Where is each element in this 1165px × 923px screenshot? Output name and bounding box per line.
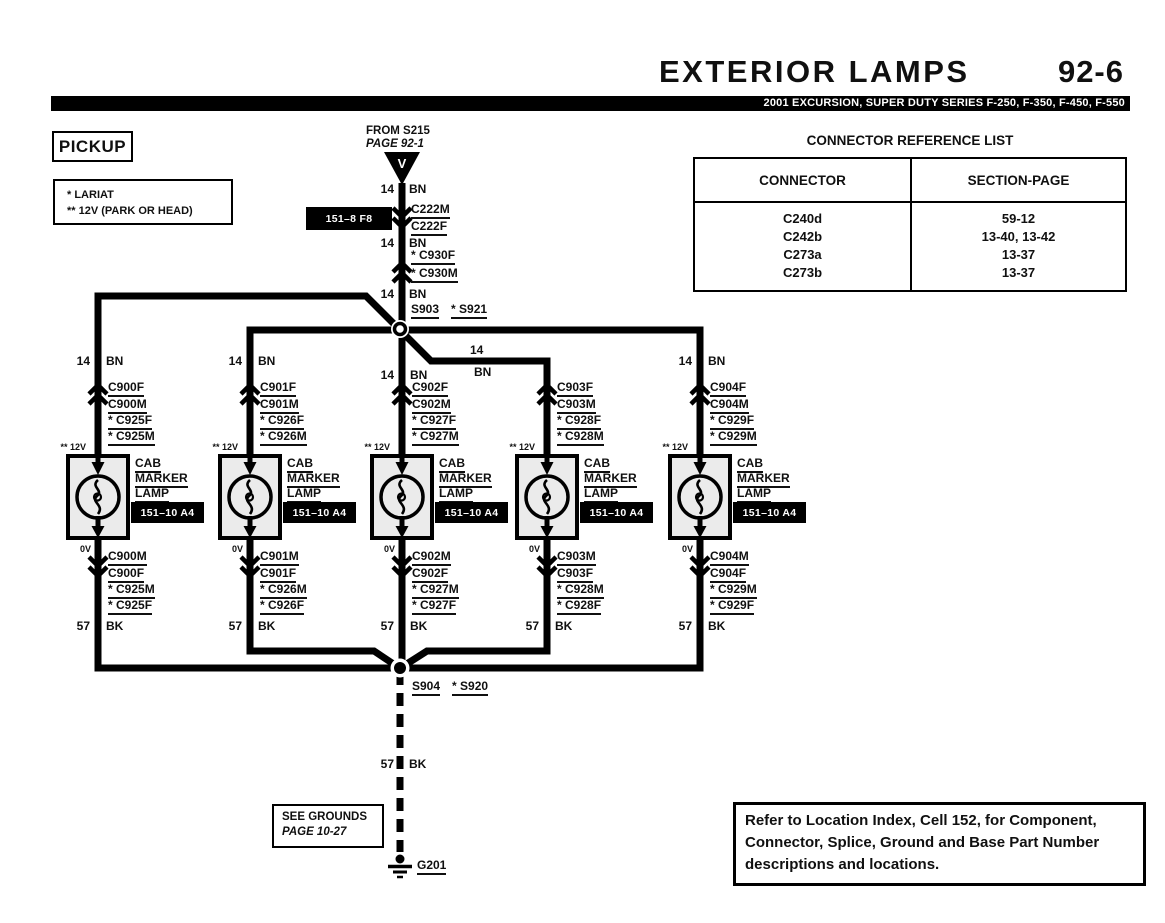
wire-gauge-label: 57 — [499, 620, 539, 633]
wire-gauge-label: 14 — [354, 288, 394, 301]
wire-color-label: BN — [708, 355, 725, 368]
connector-column: C240d C242b C273a C273b — [695, 210, 910, 282]
wire-color-label: BK — [555, 620, 572, 633]
wire-color-label: BK — [409, 758, 426, 771]
splice-label-row: S904 * S920 — [412, 680, 488, 696]
voltage-label-12v: ** 12V — [330, 442, 390, 452]
wire-gauge-label: 14 — [354, 237, 394, 250]
legend-line-1: * LARIAT — [67, 187, 231, 203]
voltage-label-0v: 0V — [203, 544, 243, 554]
see-grounds-label: SEE GROUNDS — [282, 810, 382, 825]
wiring-diagram-page: EXTERIOR LAMPS 92-6 2001 EXCURSION, SUPE… — [0, 0, 1165, 923]
source-page-label: PAGE 92-1 — [366, 138, 424, 151]
connector-label: C904M — [710, 398, 749, 414]
connector-label: C904F — [710, 567, 746, 583]
component-name: LAMP — [737, 487, 771, 503]
section-page-column: 59-12 13-40, 13-42 13-37 13-37 — [912, 210, 1125, 282]
table-header-divider — [695, 201, 1125, 203]
connector-label: C904M — [710, 550, 749, 566]
page-number: 92-6 — [1038, 55, 1124, 88]
legend-line-2: ** 12V (PARK OR HEAD) — [67, 203, 231, 219]
table-cell: 13-37 — [912, 264, 1125, 282]
connector-label: * C926M — [260, 583, 307, 599]
table-cell: C242b — [695, 228, 910, 246]
connector-label: * C928M — [557, 430, 604, 446]
voltage-label-0v: 0V — [653, 544, 693, 554]
table-cell: 13-37 — [912, 246, 1125, 264]
connector-label: * C929M — [710, 583, 757, 599]
connector-reference-table: CONNECTOR SECTION-PAGE C240d C242b C273a… — [693, 157, 1127, 292]
splice-s904-icon — [391, 659, 410, 678]
wire-color-label: BK — [708, 620, 725, 633]
column-header-connector: CONNECTOR — [695, 159, 910, 201]
ground-id-label: G201 — [417, 859, 446, 875]
wire-gauge-label: 14 — [50, 355, 90, 368]
wire-gauge-label: 14 — [652, 355, 692, 368]
wire-color-label: BN — [409, 288, 426, 301]
wire-color-label: BN — [106, 355, 123, 368]
wire-gauge-label: 57 — [354, 758, 394, 771]
table-cell: C240d — [695, 210, 910, 228]
splice-label-row: S903 * S921 — [411, 303, 487, 319]
wire-color-label: BK — [106, 620, 123, 633]
connector-label: * C928M — [557, 583, 604, 599]
voltage-label-0v: 0V — [51, 544, 91, 554]
wire-color-label: BN — [409, 183, 426, 196]
wire-color-label: BK — [258, 620, 275, 633]
wire-gauge-label: 14 — [354, 183, 394, 196]
wire-color-label: BN — [258, 355, 275, 368]
models-bar: 2001 EXCURSION, SUPER DUTY SERIES F-250,… — [51, 96, 1130, 111]
variant-badge: PICKUP — [52, 131, 133, 162]
wire-gauge-label: 14 — [354, 369, 394, 382]
connector-label: * C926F — [260, 414, 304, 430]
connector-label: C900F — [108, 567, 144, 583]
connector-label-c930f: * C930F — [411, 249, 455, 265]
voltage-label-12v: ** 12V — [26, 442, 86, 452]
connector-label: * C928F — [557, 599, 601, 615]
page-title: EXTERIOR LAMPS — [659, 55, 970, 88]
connector-label: * C929M — [710, 430, 757, 446]
connector-label: * C926F — [260, 599, 304, 615]
connector-label: * C928F — [557, 414, 601, 430]
voltage-label-0v: 0V — [500, 544, 540, 554]
table-cell: C273a — [695, 246, 910, 264]
ground-icon — [388, 855, 412, 878]
wire-color-label: BK — [410, 620, 427, 633]
splice-label-s903: S903 — [411, 303, 439, 319]
connector-label: * C925F — [108, 599, 152, 615]
connector-label: C900M — [108, 550, 147, 566]
column-header-section-page: SECTION-PAGE — [912, 159, 1125, 201]
wire-gauge-label: 57 — [354, 620, 394, 633]
voltage-label-0v: 0V — [355, 544, 395, 554]
splice-s903-icon — [391, 320, 409, 338]
connector-label: C900F — [108, 381, 144, 397]
connector-label: C901M — [260, 398, 299, 414]
lamp-branch-5-labels: 14 BN C904F C904M * C929F * C929M ** 12V… — [600, 340, 840, 645]
connector-label: C903F — [557, 381, 593, 397]
see-grounds-page: PAGE 10-27 — [282, 825, 382, 840]
wire-gauge-label: 57 — [50, 620, 90, 633]
connector-label: * C926M — [260, 430, 307, 446]
connector-label: C903M — [557, 550, 596, 566]
voltage-label-12v: ** 12V — [178, 442, 238, 452]
connector-label: C901F — [260, 567, 296, 583]
connector-table-title: CONNECTOR REFERENCE LIST — [693, 133, 1127, 148]
connector-label: * C925M — [108, 583, 155, 599]
connector-label: C901F — [260, 381, 296, 397]
wire-gauge-label: 14 — [202, 355, 242, 368]
connector-label: * C929F — [710, 599, 754, 615]
connector-label: C902F — [412, 567, 448, 583]
cell-reference-badge: 151–8 F8 — [306, 207, 392, 230]
wire-gauge-label: 57 — [652, 620, 692, 633]
connector-label-c930m: * C930M — [411, 267, 458, 283]
connector-label: C903M — [557, 398, 596, 414]
connector-label: C903F — [557, 567, 593, 583]
see-grounds-box: SEE GROUNDS PAGE 10-27 — [272, 804, 384, 848]
wire-gauge-label: 57 — [202, 620, 242, 633]
splice-label-s920: * S920 — [452, 680, 488, 696]
connector-label: * C925M — [108, 430, 155, 446]
splice-label-s904: S904 — [412, 680, 440, 696]
connector-label: C900M — [108, 398, 147, 414]
connector-label-c222m: C222M — [411, 203, 450, 219]
voltage-label-12v: ** 12V — [628, 442, 688, 452]
connector-label: C904F — [710, 381, 746, 397]
connector-label: C902M — [412, 550, 451, 566]
table-cell: 13-40, 13-42 — [912, 228, 1125, 246]
connector-label: * C929F — [710, 414, 754, 430]
connector-label: C902M — [412, 398, 451, 414]
connector-label: * C925F — [108, 414, 152, 430]
location-index-note: Refer to Location Index, Cell 152, for C… — [733, 802, 1146, 886]
table-cell: C273b — [695, 264, 910, 282]
splice-label-s921: * S921 — [451, 303, 487, 319]
connector-label: C902F — [412, 381, 448, 397]
cell-reference-badge: 151–10 A4 — [733, 502, 806, 523]
arrow-letter: V — [386, 157, 418, 170]
source-label: FROM S215 — [366, 125, 430, 138]
legend-box: * LARIAT ** 12V (PARK OR HEAD) — [53, 179, 233, 225]
connector-label-c222f: C222F — [411, 220, 447, 236]
connector-label: C901M — [260, 550, 299, 566]
voltage-label-12v: ** 12V — [475, 442, 535, 452]
table-cell: 59-12 — [912, 210, 1125, 228]
